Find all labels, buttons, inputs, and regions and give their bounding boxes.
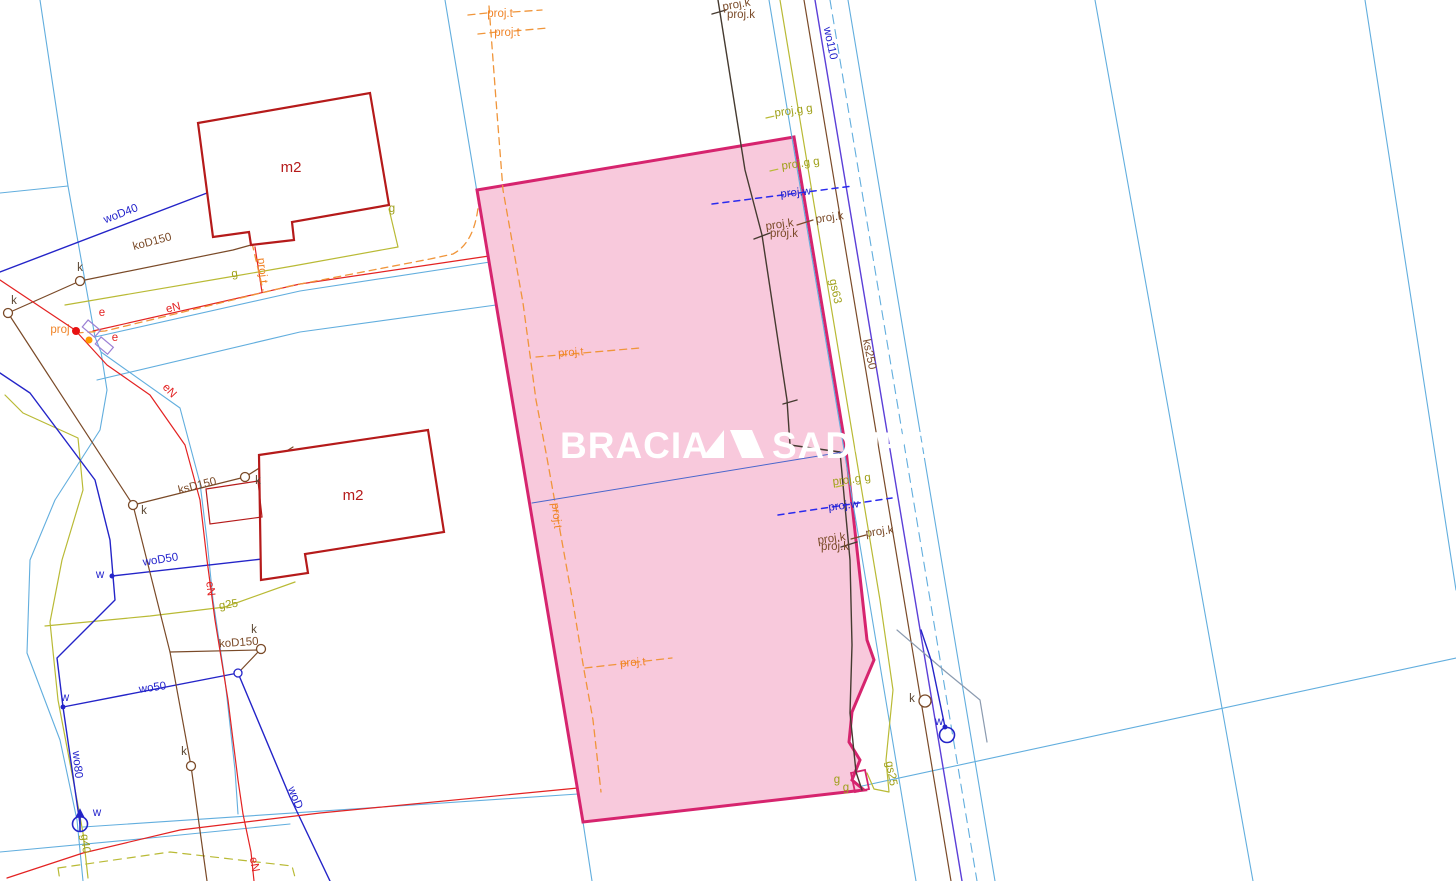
label-proj-k: proj.k [815, 210, 845, 226]
label-proj-k: proj.k [821, 541, 849, 553]
watermark: BRACIA SADURSCY [560, 425, 988, 466]
label-k: k [77, 262, 83, 274]
label-proj-k: proj.k [770, 228, 798, 240]
parcel-line-east1 [1095, 0, 1253, 881]
watermark-text-2: SADURSCY [772, 425, 988, 466]
label-building-m2: m2 [281, 159, 302, 176]
label-proj-w: proj.w [780, 185, 812, 200]
label-proj-t: proj.t [558, 346, 585, 360]
label-w: w [95, 569, 105, 581]
valve-icon [61, 705, 66, 710]
lamp-icon [86, 337, 93, 344]
label-proj: proj [50, 324, 69, 336]
parcel-line-southeast [862, 658, 1456, 786]
label-k: k [11, 295, 17, 307]
parcel-line-drive2 [95, 262, 490, 337]
cabinet-icons [82, 320, 113, 354]
watermark-text-1: BRACIA [560, 425, 710, 466]
parcel-line-east2 [1365, 0, 1456, 590]
manhole-icon [919, 695, 931, 707]
sewer-line-koD150 [8, 245, 251, 881]
cabinet-icon [82, 320, 100, 337]
power-line-eN2 [0, 280, 243, 814]
label-eN: eN [165, 300, 182, 315]
sewer-branch-koD150 [170, 650, 258, 652]
water-node-icon [234, 669, 242, 677]
label-e: e [99, 307, 105, 319]
label-proj-t: proj.t [255, 257, 270, 284]
label-proj-w: proj.w [828, 498, 861, 514]
sewer-connector [240, 651, 259, 671]
label-proj-g: proj.g g [774, 102, 814, 119]
label-koD150: koD150 [219, 636, 259, 651]
manhole-icon [241, 473, 250, 482]
label-eN: eN [247, 856, 261, 873]
label-woD40: woD40 [101, 202, 140, 226]
water-service-line [921, 630, 945, 727]
label-g: g [834, 774, 840, 786]
cabinet-icon [95, 337, 113, 354]
label-proj-t: proj.t [494, 27, 520, 39]
label-g: g [389, 203, 395, 215]
label-eN: eN [203, 581, 216, 597]
parcel-line-mid [101, 352, 238, 814]
manhole-icon [187, 762, 196, 771]
label-w: w [92, 807, 102, 819]
cadastral-map: BRACIA SADURSCY [0, 0, 1456, 881]
label-wo110: wo110 [820, 25, 839, 61]
label-g25: g25 [218, 598, 239, 613]
gas-line-g25 [45, 582, 295, 626]
label-wo50: wo50 [137, 680, 167, 696]
hydrant-icon [940, 728, 955, 743]
label-eN: eN [160, 381, 179, 400]
label-k: k [251, 624, 257, 636]
building-2 [259, 430, 444, 580]
label-proj-k: proj.k [865, 524, 895, 540]
label-ksD150: ksD150 [177, 476, 218, 497]
label-w: w [60, 692, 70, 704]
label-k: k [181, 746, 187, 758]
label-g: g [843, 782, 849, 794]
power-pole-icon [72, 327, 80, 335]
label-k: k [255, 475, 261, 487]
label-building-m2: m2 [343, 487, 364, 504]
water-line-woD [238, 673, 330, 881]
label-e: e [112, 332, 118, 344]
label-k: k [141, 505, 147, 517]
label-proj-k: proj.k [727, 9, 755, 21]
manhole-icon [4, 309, 13, 318]
manhole-icon [129, 501, 138, 510]
parcel-line-left-joiner [0, 186, 68, 193]
water-line-wo80 [0, 373, 115, 824]
label-k: k [909, 693, 915, 705]
buildings [198, 93, 444, 580]
label-g: g [231, 268, 239, 281]
manhole-icon [76, 277, 85, 286]
water-line-woD40 [0, 193, 207, 272]
label-woD50: woD50 [141, 551, 179, 569]
label-proj-t: proj.t [487, 8, 513, 20]
label-woD: woD [285, 784, 305, 811]
label-koD150: koD150 [132, 231, 173, 253]
label-g40: g40 [78, 834, 92, 854]
map-viewport[interactable]: BRACIA SADURSCY [0, 0, 1456, 881]
label-w: w [934, 716, 944, 728]
label-gs63: gs63 [826, 278, 843, 305]
water-line-woD50 [112, 559, 262, 576]
label-proj-t: proj.t [620, 656, 647, 670]
valve-icon [110, 574, 115, 579]
parcel-line-south1 [83, 794, 578, 827]
